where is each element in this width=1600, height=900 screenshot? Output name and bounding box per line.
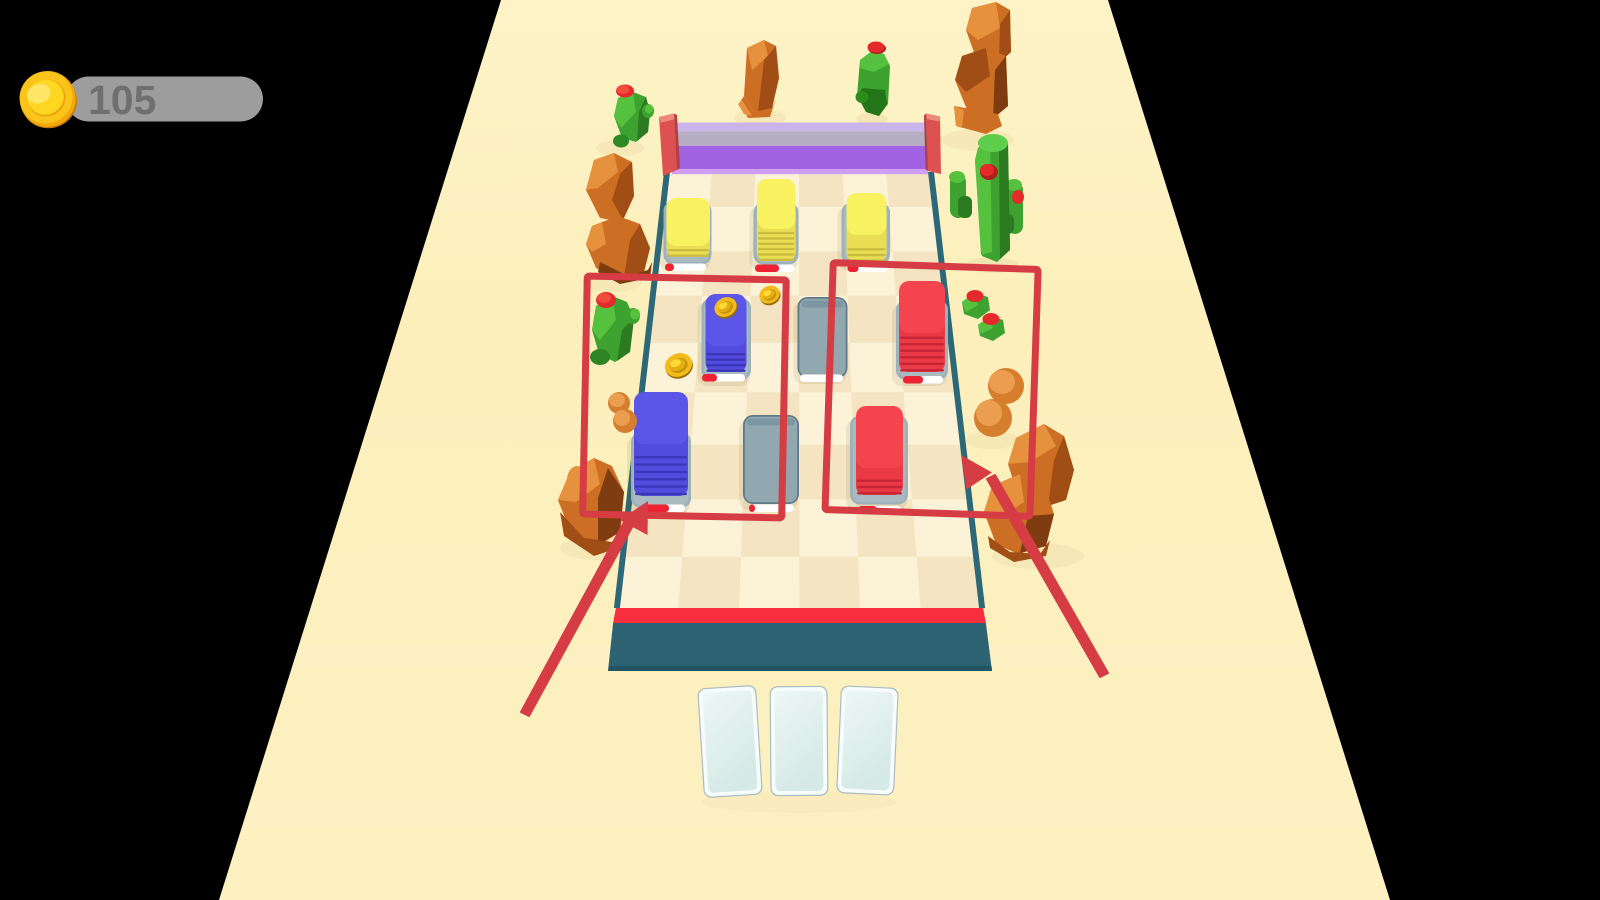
- svg-text:105: 105: [88, 77, 156, 123]
